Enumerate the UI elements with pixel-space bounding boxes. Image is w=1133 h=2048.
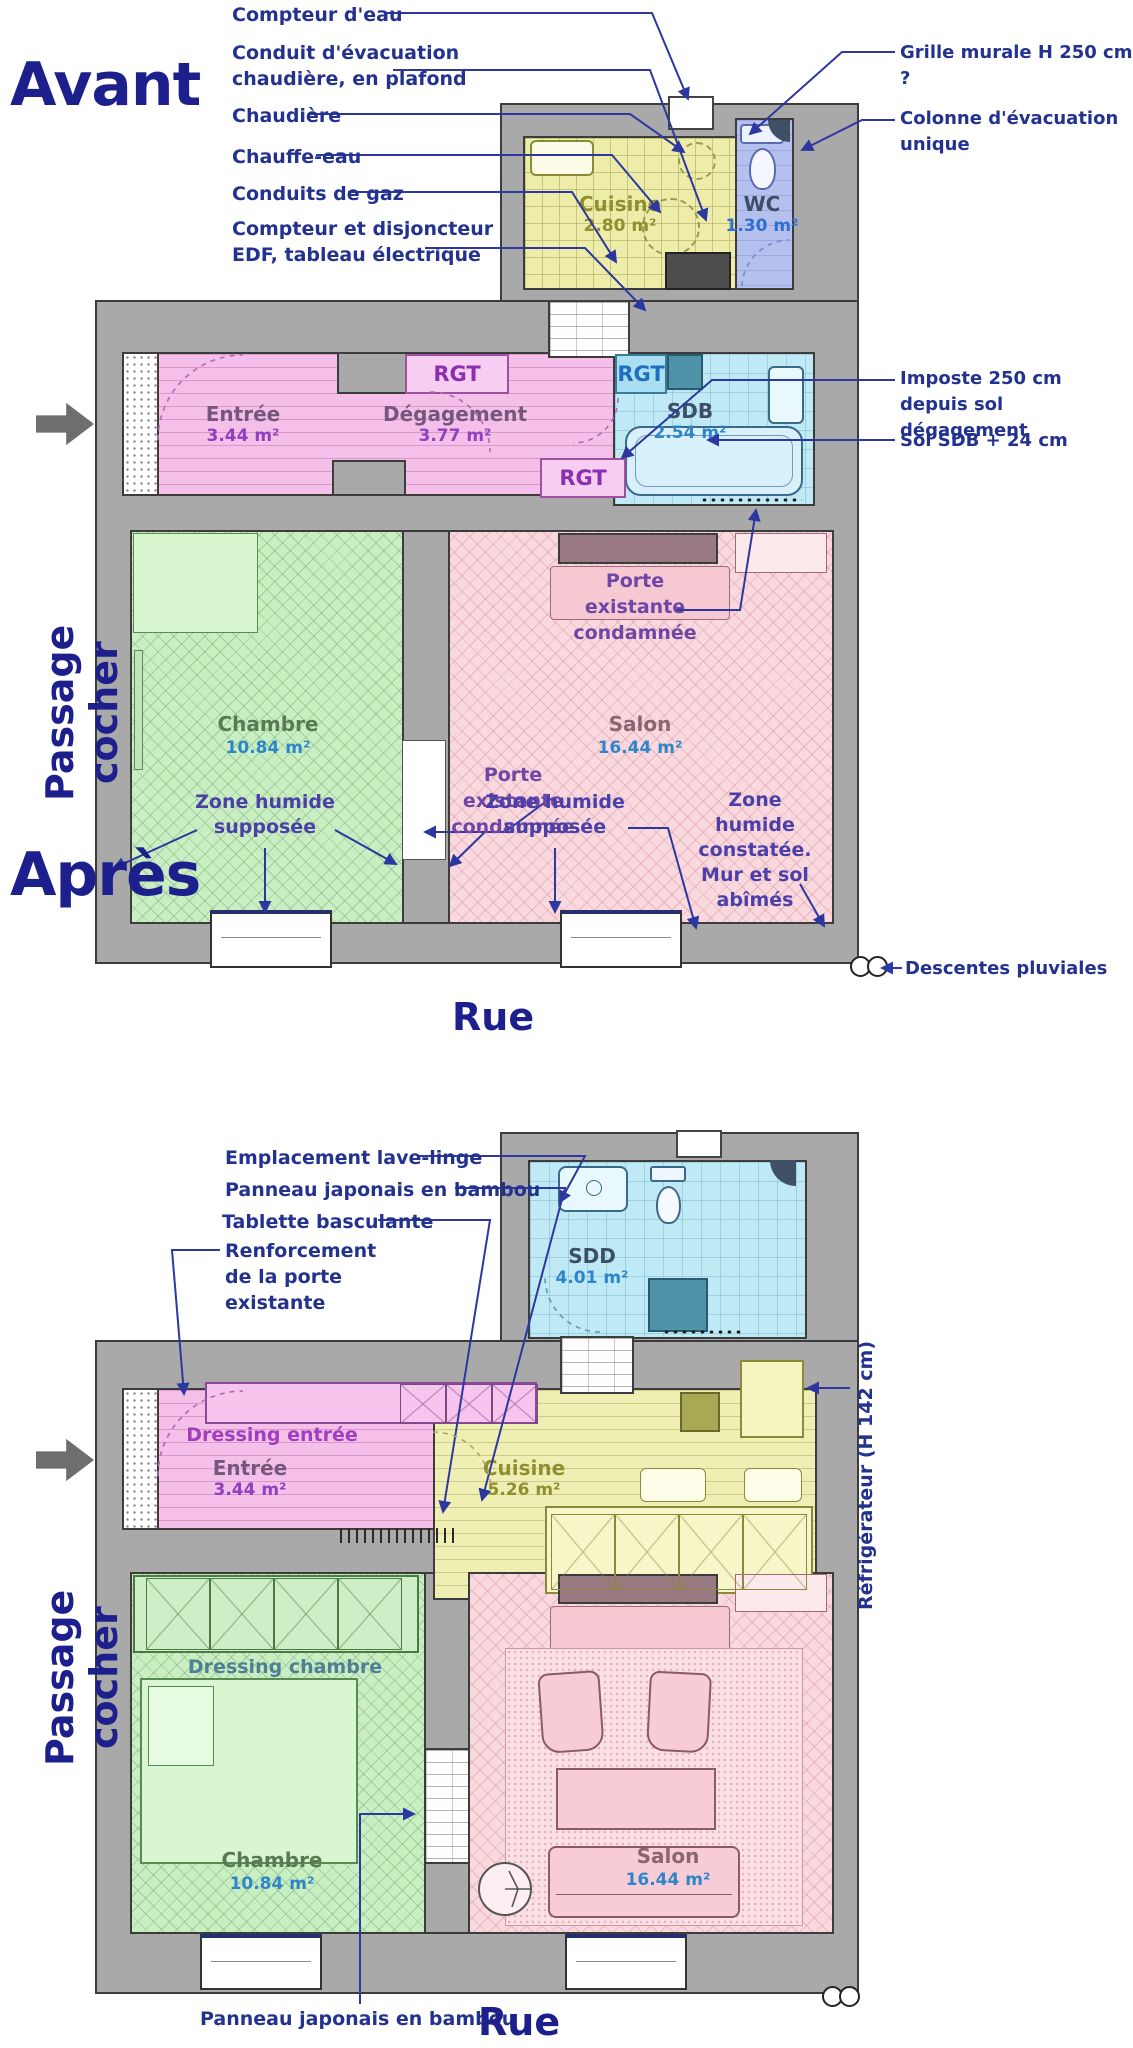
corridor-wall-notch-top — [337, 352, 407, 394]
sdd-washer-cabinet — [648, 1278, 708, 1332]
callout-panneau-haut: Panneau japonais en bambou — [225, 1177, 540, 1203]
chambre-furniture — [133, 533, 258, 633]
wardrobe-cell-green — [274, 1578, 338, 1650]
label-salon: Salon — [609, 712, 672, 736]
storage-rgt-2: RGT — [540, 458, 626, 498]
avant-condemned-door-gap — [402, 740, 446, 860]
apres-entrance-arrow-icon — [36, 1436, 94, 1484]
label-degagement: Dégagement — [383, 402, 527, 426]
wardrobe-cell — [446, 1384, 492, 1424]
storage-rgt-1: RGT — [405, 354, 509, 394]
annotation-zone-constatee: Zone humide constatée. Mur et sol abîmés — [690, 788, 820, 913]
callout-refrigerateur: Réfrigérateur (H 142 cm) — [853, 1250, 895, 1700]
base-cabinet-cell — [551, 1514, 615, 1590]
water-meter-box — [668, 96, 714, 130]
label-wc: WC — [744, 192, 781, 216]
sdd-door-sill — [662, 1328, 742, 1336]
condemned-door-sill — [700, 496, 802, 504]
annotation-porte-condamnee-1: Porte existante condamnée — [560, 568, 710, 646]
label-apres-cuisine: Cuisine — [483, 1456, 565, 1480]
annotation-zone-humide-1: Zone humide supposée — [195, 790, 335, 840]
callout-chaudiere: Chaudière — [232, 103, 341, 129]
chambre-radiator — [134, 650, 143, 770]
floorplan-diagram: Avant Compteur d'eau Conduit d'évacuatio… — [0, 0, 1133, 2048]
base-cabinet-cell — [615, 1514, 679, 1590]
wardrobe-cell-green — [210, 1578, 274, 1650]
salon-radiator — [735, 533, 827, 573]
armchair-1 — [537, 1670, 604, 1754]
label-apres-salon: Salon — [637, 1844, 700, 1868]
bed — [140, 1678, 358, 1864]
apres-rain-downpipe-2 — [839, 1986, 860, 2007]
area-apres-cuisine: 5.26 m² — [487, 1480, 560, 1500]
area-sdd: 4.01 m² — [555, 1268, 628, 1288]
kitchen-duct-block — [680, 1392, 720, 1432]
folding-shelf-coil — [340, 1528, 460, 1543]
fireplace — [558, 533, 718, 564]
label-dressing-entree: Dressing entrée — [186, 1424, 358, 1446]
label-cuisine: Cuisine — [579, 192, 661, 216]
apres-salon-window — [565, 1934, 687, 1990]
sdd-wc-cistern — [650, 1166, 686, 1182]
area-apres-entree: 3.44 m² — [213, 1480, 286, 1500]
bed-pillow — [148, 1686, 214, 1766]
area-degagement: 3.77 m² — [418, 426, 491, 446]
avant-chambre-window — [210, 910, 332, 968]
label-apres-entree: Entrée — [213, 1456, 287, 1480]
sdd-washbasin — [558, 1166, 628, 1212]
hall-tiles — [548, 300, 630, 358]
avant-middle-wall — [400, 530, 452, 924]
callout-colonne-evacuation: Colonne d'évacuation unique — [900, 106, 1118, 158]
armchair-2 — [646, 1670, 712, 1753]
sdd-washbasin-drain — [586, 1180, 602, 1196]
storage-rgt-3: RGT — [615, 354, 667, 394]
area-apres-salon: 16.44 m² — [626, 1870, 711, 1890]
sdd-wc-bowl — [656, 1186, 681, 1224]
callout-compteur-eau: Compteur d'eau — [232, 2, 403, 28]
boiler-dashed-circle — [678, 142, 716, 180]
callout-conduit-evacuation: Conduit d'évacuation chaudière, en plafo… — [232, 40, 467, 92]
callout-renforcement: Renforcement de la porte existante — [225, 1238, 376, 1316]
avant-street-label: Rue — [452, 995, 534, 1039]
avant-salon-window — [560, 910, 682, 968]
callout-descentes-pluviales: Descentes pluviales — [905, 956, 1107, 982]
wc-bowl — [749, 148, 776, 190]
callout-conduits-gaz: Conduits de gaz — [232, 181, 404, 207]
callout-panneau-bas: Panneau japonais en bambou — [200, 2006, 515, 2032]
area-sdb: 2.54 m² — [653, 423, 726, 443]
annotation-zone-humide-2: Zone humide supposée — [485, 790, 625, 840]
apres-street-label: Rue — [478, 2000, 560, 2044]
label-entree: Entrée — [206, 402, 280, 426]
wardrobe-cell — [400, 1384, 446, 1424]
refrigerator — [740, 1360, 804, 1438]
apres-title: Après — [10, 840, 200, 910]
japanese-panel-door — [424, 1748, 470, 1864]
apres-hall-tiles — [560, 1336, 634, 1394]
sdb-cabinet — [667, 354, 703, 390]
area-cuisine: 2.80 m² — [583, 216, 656, 236]
callout-compteur-edf: Compteur et disjoncteur EDF, tableau éle… — [232, 216, 493, 268]
area-entree: 3.44 m² — [206, 426, 279, 446]
fan — [478, 1862, 532, 1916]
sofa-seat-line — [556, 1894, 732, 1910]
wardrobe-cell-green — [146, 1578, 210, 1650]
area-salon: 16.44 m² — [598, 738, 683, 758]
label-sdb: SDB — [667, 399, 713, 423]
area-apres-chambre: 10.84 m² — [230, 1874, 315, 1894]
sdb-washbasin — [768, 366, 804, 424]
avant-passage-cocher-label: Passage cocher — [38, 565, 84, 860]
label-dressing-chambre: Dressing chambre — [188, 1656, 382, 1678]
callout-tablette: Tablette basculante — [222, 1209, 433, 1235]
callout-grille-murale: Grille murale H 250 cm ? — [900, 40, 1133, 92]
apres-entrance-door-wall — [122, 1388, 159, 1530]
wardrobe-cell — [492, 1384, 538, 1424]
flue-block — [665, 252, 731, 290]
kitchen-sink-apres — [744, 1468, 802, 1502]
kitchen-sink — [530, 140, 594, 176]
apres-chambre-window — [200, 1934, 322, 1990]
entrance-door-wall — [122, 352, 159, 496]
rain-downpipe-2 — [867, 956, 888, 977]
callout-lave-linge: Emplacement lave-linge — [225, 1145, 482, 1171]
callout-sol-sdb: Sol SDB + 24 cm — [900, 428, 1068, 454]
corridor-wall-notch-bottom — [332, 460, 406, 496]
base-cabinet-cell — [679, 1514, 743, 1590]
sdd-appliance-box — [676, 1130, 722, 1158]
label-apres-chambre: Chambre — [222, 1848, 323, 1872]
avant-title: Avant — [10, 50, 200, 120]
apres-passage-cocher-label: Passage cocher — [38, 1530, 84, 1825]
callout-chauffe-eau: Chauffe-eau — [232, 144, 361, 170]
area-wc: 1.30 m² — [725, 216, 798, 236]
entrance-arrow-icon — [36, 400, 94, 448]
base-cabinet-cell — [743, 1514, 807, 1590]
label-chambre: Chambre — [218, 712, 319, 736]
area-chambre: 10.84 m² — [226, 738, 311, 758]
wardrobe-cell-green — [338, 1578, 402, 1650]
kitchen-stove — [640, 1468, 706, 1502]
label-sdd: SDD — [568, 1244, 616, 1268]
coffee-table — [556, 1768, 716, 1830]
